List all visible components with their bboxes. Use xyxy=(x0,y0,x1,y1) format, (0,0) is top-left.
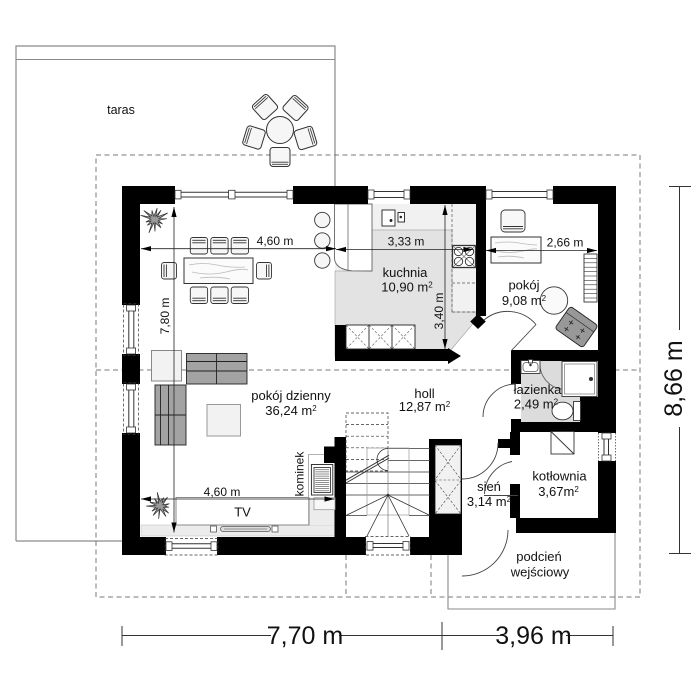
svg-text:kotłownia: kotłownia xyxy=(532,469,587,484)
svg-text:taras: taras xyxy=(107,103,135,117)
svg-text:4,60 m: 4,60 m xyxy=(204,485,241,499)
svg-text:8,66 m: 8,66 m xyxy=(660,340,688,416)
svg-text:wejściowy: wejściowy xyxy=(510,565,570,580)
svg-text:3,40 m: 3,40 m xyxy=(432,293,446,330)
svg-text:4,60 m: 4,60 m xyxy=(257,234,294,248)
svg-text:7,70 m: 7,70 m xyxy=(267,622,343,650)
svg-text:3,33 m: 3,33 m xyxy=(388,235,425,249)
svg-text:9,08 m2: 9,08 m2 xyxy=(502,293,547,308)
svg-text:2,66 m: 2,66 m xyxy=(547,236,584,250)
svg-text:10,90 m2: 10,90 m2 xyxy=(381,280,433,295)
svg-text:podcień: podcień xyxy=(516,549,562,564)
svg-text:3,67m2: 3,67m2 xyxy=(538,484,579,499)
svg-text:pokój: pokój xyxy=(508,278,539,293)
svg-text:pokój dzienny: pokój dzienny xyxy=(251,388,331,403)
svg-text:12,87 m2: 12,87 m2 xyxy=(399,399,451,414)
svg-text:3,96 m: 3,96 m xyxy=(495,622,571,650)
svg-text:łazienka: łazienka xyxy=(514,382,562,397)
svg-text:36,24 m2: 36,24 m2 xyxy=(265,403,317,418)
svg-text:kuchnia: kuchnia xyxy=(383,265,429,280)
svg-text:sień: sień xyxy=(477,479,501,494)
svg-text:2,49 m2: 2,49 m2 xyxy=(514,397,559,412)
svg-text:3,14 m2: 3,14 m2 xyxy=(467,494,512,509)
svg-text:kominek: kominek xyxy=(293,451,307,497)
svg-text:7,80 m: 7,80 m xyxy=(158,298,172,335)
svg-text:TV: TV xyxy=(234,505,251,520)
